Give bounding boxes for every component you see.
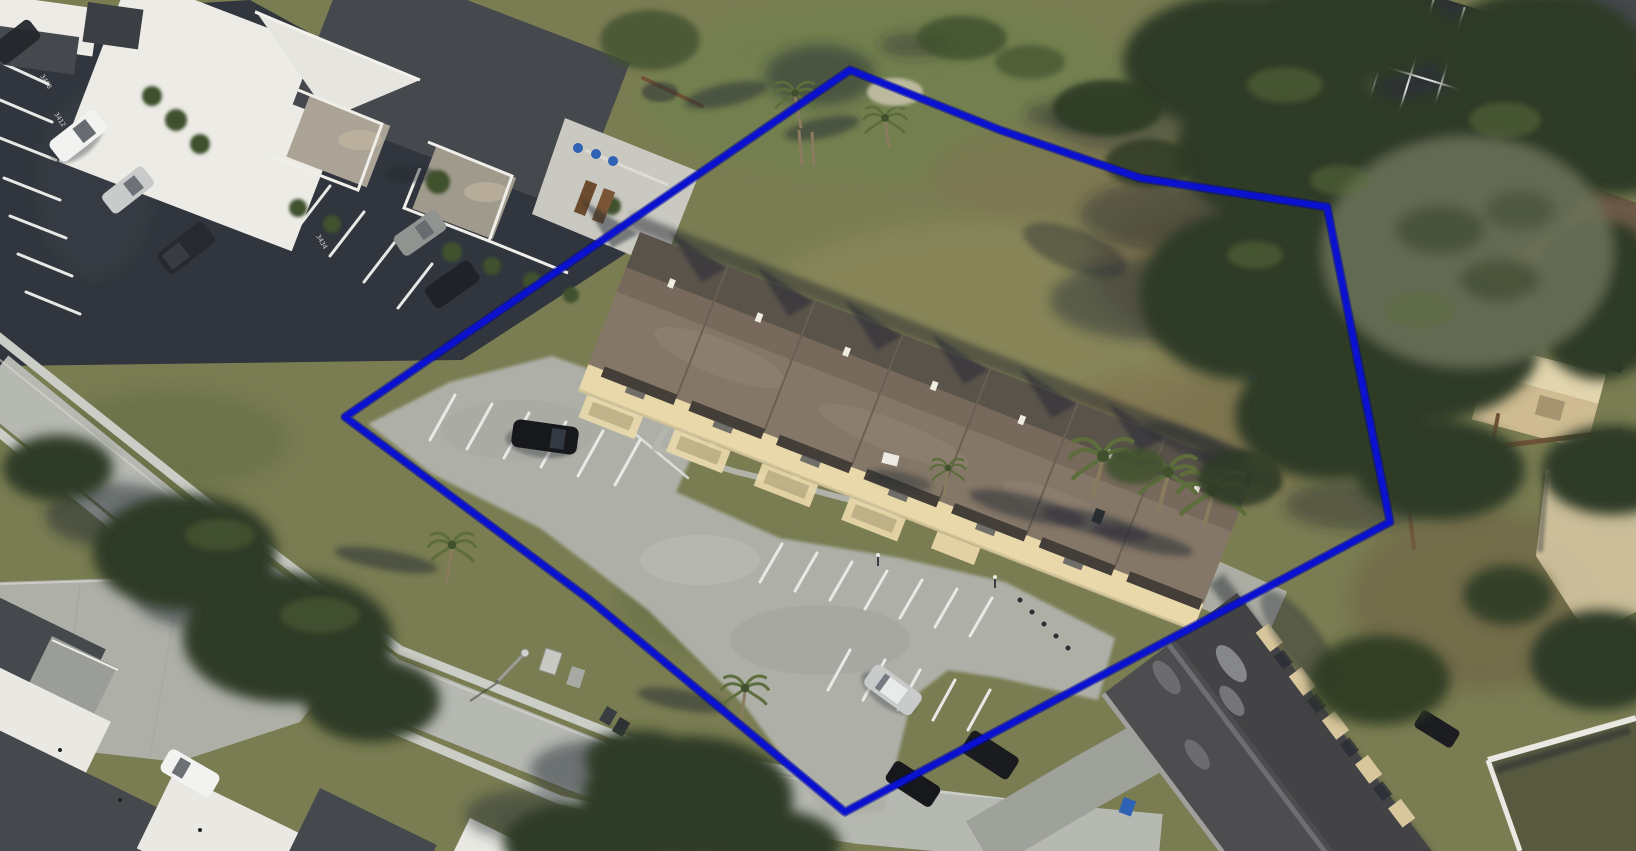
aerial-screenshot: 3424 3434 3408 3412 3416 (0, 0, 1636, 851)
round-tree (426, 170, 450, 194)
sign-post (993, 575, 997, 579)
bare-oak-tree (1323, 137, 1613, 367)
aerial-photo: 3424 3434 3408 3412 3416 (0, 0, 1636, 851)
sign-post (876, 553, 880, 557)
